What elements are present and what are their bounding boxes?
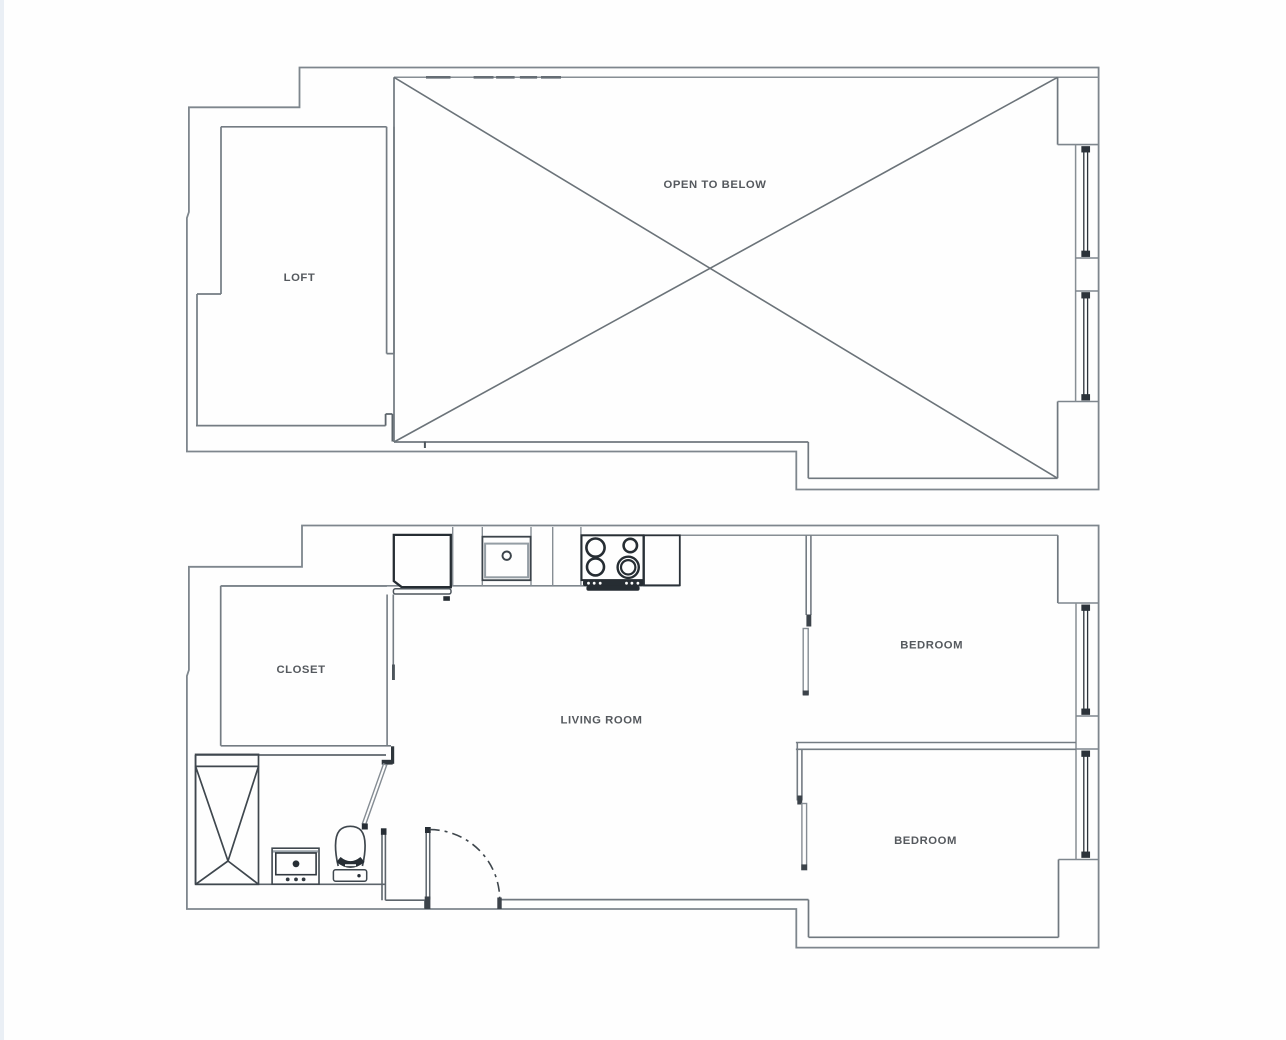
svg-text:BEDROOM: BEDROOM: [894, 835, 957, 847]
svg-text:LIVING ROOM: LIVING ROOM: [561, 715, 643, 727]
svg-text:OPEN TO BELOW: OPEN TO BELOW: [664, 179, 767, 191]
svg-text:LOFT: LOFT: [284, 272, 316, 284]
svg-text:BEDROOM: BEDROOM: [900, 640, 963, 652]
svg-text:CLOSET: CLOSET: [276, 664, 325, 676]
